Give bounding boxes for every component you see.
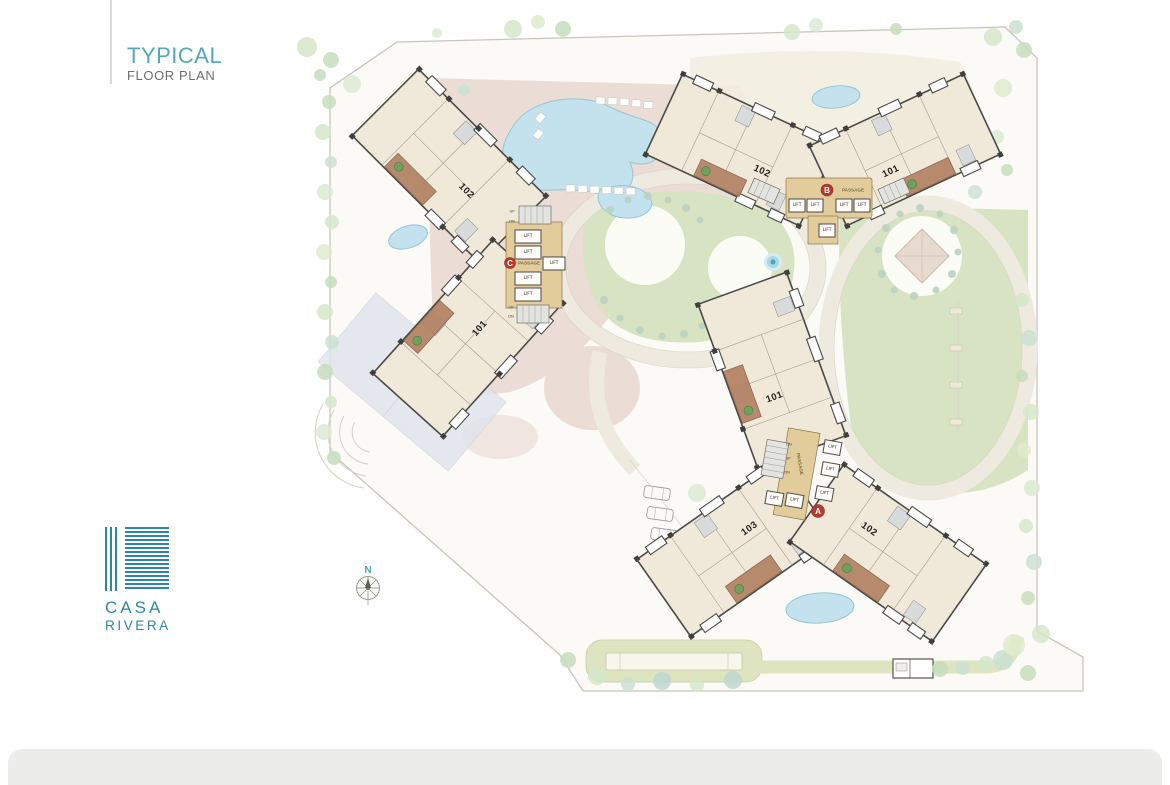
- compass-north-label: N: [364, 565, 371, 576]
- lift-a-2: LIFT: [821, 462, 840, 478]
- svg-text:LIFT: LIFT: [524, 291, 533, 297]
- brand-logo: CASA RIVERA: [105, 527, 225, 633]
- floor-plan-canvas: 102 101: [0, 0, 1170, 785]
- svg-text:LIFT: LIFT: [524, 233, 533, 239]
- page: TYPICAL FLOOR PLAN: [0, 0, 1170, 785]
- gatehouse: [893, 659, 933, 678]
- brand-name-line2: RIVERA: [105, 618, 225, 633]
- lift-b-3: LIFT: [836, 199, 852, 212]
- lift-c-2: LIFT: [515, 246, 541, 259]
- svg-text:LIFT: LIFT: [858, 202, 867, 208]
- svg-text:LIFT: LIFT: [550, 260, 559, 266]
- svg-text:UP: UP: [785, 456, 791, 461]
- lift-a-1: LIFT: [823, 440, 842, 456]
- building-c-core: UP DN LIFT LIFT C PASSAGE LIFT LIFT LIFT…: [505, 206, 566, 323]
- lift-c-1: LIFT: [515, 230, 541, 243]
- lift-b-1: LIFT: [789, 199, 805, 212]
- svg-text:LIFT: LIFT: [524, 249, 533, 255]
- svg-text:DN: DN: [786, 442, 792, 447]
- lift-a-4: LIFT: [765, 491, 784, 507]
- logo-horizontal-stripes-icon: [125, 527, 169, 591]
- svg-text:UP: UP: [509, 209, 515, 214]
- lift-c-5: LIFT: [515, 288, 541, 301]
- lift-b-2: LIFT: [807, 199, 823, 212]
- svg-text:LIFT: LIFT: [524, 275, 533, 281]
- svg-text:DN: DN: [784, 470, 790, 475]
- svg-text:UP: UP: [508, 305, 514, 310]
- svg-text:A: A: [815, 507, 821, 516]
- brand-name-line1: CASA: [105, 598, 225, 618]
- lift-b-5: LIFT: [819, 224, 835, 237]
- svg-text:B: B: [824, 186, 830, 195]
- svg-text:LIFT: LIFT: [793, 202, 802, 208]
- svg-text:LIFT: LIFT: [811, 202, 820, 208]
- svg-text:DN: DN: [509, 219, 515, 224]
- lift-c-3: LIFT: [543, 257, 565, 270]
- logo-vertical-stripes-icon: [105, 527, 120, 591]
- svg-text:LIFT: LIFT: [823, 227, 832, 233]
- svg-text:PASSAGE: PASSAGE: [518, 261, 540, 266]
- svg-text:LIFT: LIFT: [840, 202, 849, 208]
- svg-text:DN: DN: [508, 314, 514, 319]
- lift-c-4: LIFT: [515, 272, 541, 285]
- brand-logo-mark: [105, 527, 225, 591]
- lift-a-5: LIFT: [785, 493, 804, 509]
- svg-text:C: C: [507, 259, 513, 268]
- lift-a-3: LIFT: [815, 486, 834, 502]
- bottom-section-strip: [8, 749, 1162, 785]
- fountain: [764, 253, 782, 271]
- lift-b-4: LIFT: [854, 199, 870, 212]
- compass: N: [356, 565, 380, 605]
- svg-text:PASSAGE: PASSAGE: [842, 188, 864, 193]
